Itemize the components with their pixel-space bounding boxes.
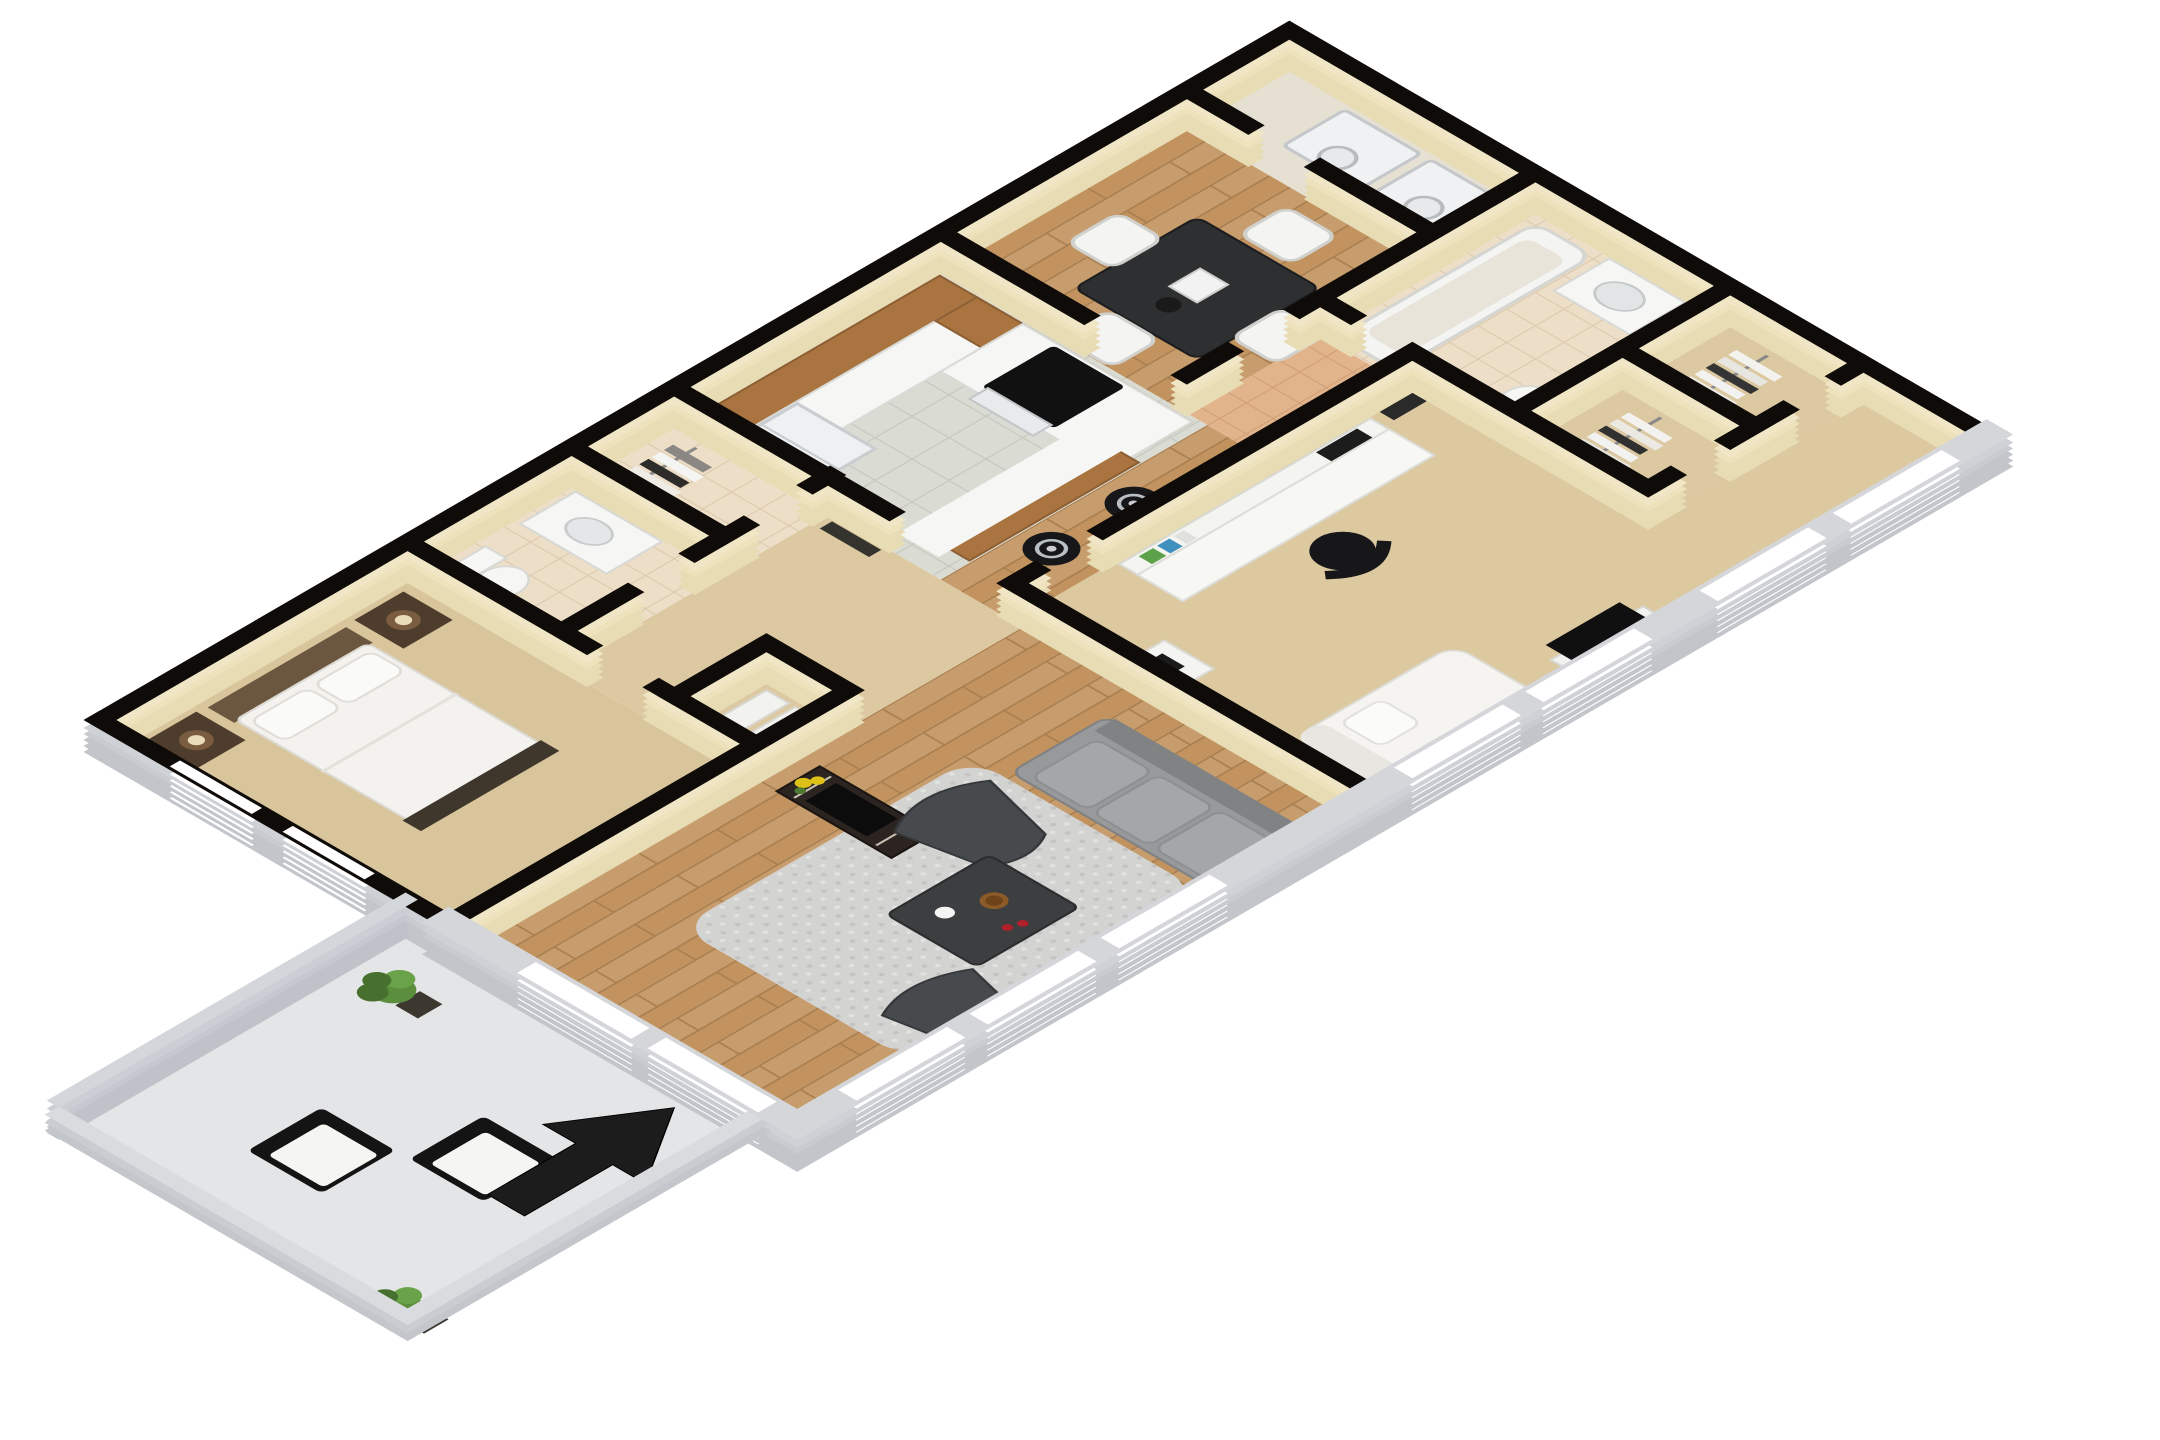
floor-plan-stage (0, 0, 2160, 1440)
floor-plan-3d-render (0, 0, 2160, 1440)
